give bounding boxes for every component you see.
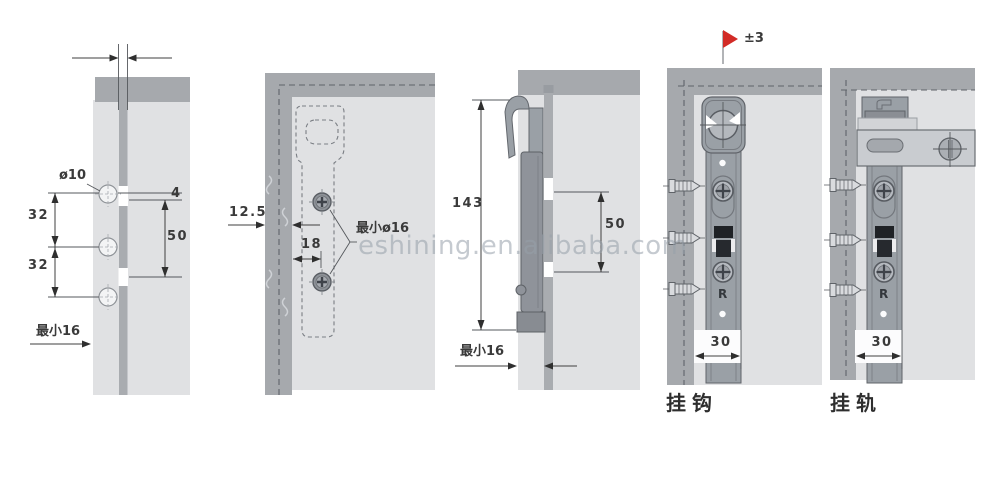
dim-inset: 18 xyxy=(301,238,322,251)
r-marking: R xyxy=(879,288,888,300)
dim-offset: 4 xyxy=(171,187,180,200)
technical-drawing-sheet: ø10 32 32 4 50 最小16 12.5 18 最小ø16 143 50… xyxy=(0,0,1000,500)
r-marking: R xyxy=(718,288,727,300)
caption-hook: 挂钩 xyxy=(666,393,718,413)
rail-slot xyxy=(867,139,903,152)
dim-min-edge: 最小16 xyxy=(460,345,504,358)
dim-hole-diameter: ø10 xyxy=(59,169,86,182)
rail-clamp xyxy=(858,97,917,131)
cam-adjuster-icon xyxy=(700,97,746,153)
dim-width: 30 xyxy=(864,336,900,349)
dim-width: 30 xyxy=(703,336,739,349)
dim-slot-length: 50 xyxy=(605,218,626,231)
dim-thickness: 12.5 xyxy=(229,206,267,219)
panel-groove xyxy=(119,90,128,395)
panel-slot-front-view xyxy=(30,44,190,395)
panel-hook-view xyxy=(663,30,822,385)
hanging-rail xyxy=(857,130,975,167)
watermark-text: eshining.en.alibaba.com xyxy=(358,233,687,259)
red-flag-icon xyxy=(723,30,738,64)
caption-rail: 挂轨 xyxy=(830,393,882,413)
tolerance-label: ±3 xyxy=(744,32,764,45)
dim-min-edge: 最小16 xyxy=(36,325,80,338)
dim-height: 143 xyxy=(452,197,484,210)
dim-spacing-top: 32 xyxy=(28,209,49,222)
dim-spacing-bottom: 32 xyxy=(28,259,49,272)
dim-slot-length: 50 xyxy=(167,230,188,243)
